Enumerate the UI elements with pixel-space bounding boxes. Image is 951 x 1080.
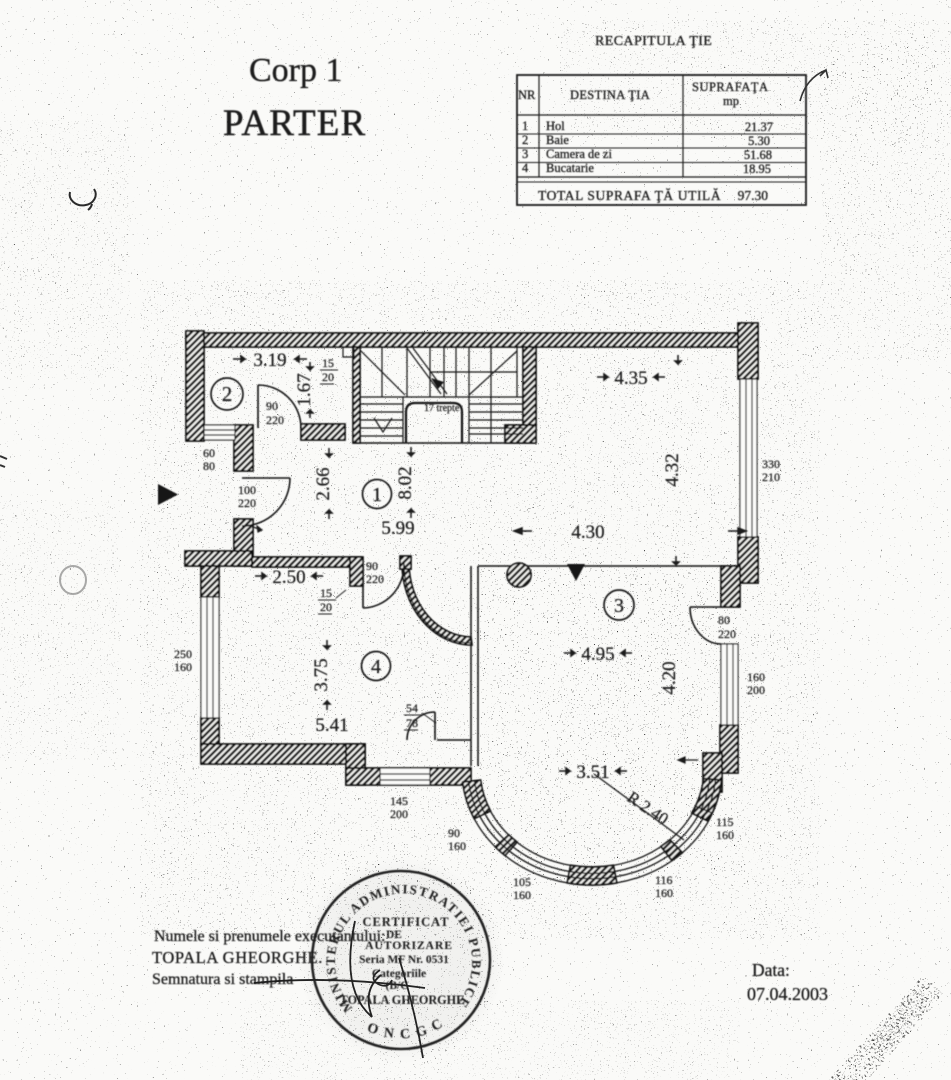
svg-text:2.50: 2.50 xyxy=(272,567,305,588)
svg-text:160: 160 xyxy=(513,888,531,902)
svg-text:4: 4 xyxy=(522,161,529,175)
svg-text:mp: mp xyxy=(723,94,739,108)
svg-text:NR: NR xyxy=(518,88,536,102)
svg-text:4.30: 4.30 xyxy=(571,522,604,543)
svg-text:SUPRAFAŢA: SUPRAFAŢA xyxy=(692,80,769,94)
svg-text:1: 1 xyxy=(372,484,382,506)
svg-text:21.37: 21.37 xyxy=(745,120,773,134)
svg-text:RECAPITULA ŢIE: RECAPITULA ŢIE xyxy=(595,34,712,49)
svg-text:90: 90 xyxy=(448,826,460,840)
svg-text:3.75: 3.75 xyxy=(311,658,332,691)
svg-text:3.19: 3.19 xyxy=(253,350,286,371)
svg-text:78: 78 xyxy=(406,716,418,730)
svg-text:Baie: Baie xyxy=(546,133,569,147)
svg-text:CERTIFICAT: CERTIFICAT xyxy=(362,915,449,929)
svg-text:Bucatarie: Bucatarie xyxy=(546,161,594,175)
svg-text:100: 100 xyxy=(238,483,256,497)
svg-text:210: 210 xyxy=(762,470,780,484)
svg-text:220: 220 xyxy=(238,496,256,510)
svg-text:160: 160 xyxy=(448,839,466,853)
svg-text:20: 20 xyxy=(322,370,334,384)
svg-text:160: 160 xyxy=(174,660,192,674)
svg-text:Semnatura si stampila: Semnatura si stampila xyxy=(152,971,293,988)
svg-text:116: 116 xyxy=(655,873,673,887)
svg-text:18.95: 18.95 xyxy=(743,162,771,176)
svg-text:160: 160 xyxy=(655,886,673,900)
svg-text:1: 1 xyxy=(522,119,528,133)
svg-text:54: 54 xyxy=(406,701,418,715)
svg-text:PARTER: PARTER xyxy=(223,103,366,144)
svg-text:160: 160 xyxy=(747,670,765,684)
svg-text:Data:: Data: xyxy=(752,960,790,980)
svg-text:145: 145 xyxy=(390,794,408,808)
svg-text:4.32: 4.32 xyxy=(662,453,683,486)
svg-text:60: 60 xyxy=(203,446,215,460)
svg-text:1.67: 1.67 xyxy=(294,373,315,406)
svg-text:4.20: 4.20 xyxy=(659,661,680,694)
svg-text:51.68: 51.68 xyxy=(744,148,772,162)
svg-text:250: 250 xyxy=(174,647,192,661)
svg-text:15: 15 xyxy=(320,586,332,600)
svg-text:Categoriile: Categoriile xyxy=(372,968,426,980)
svg-text:80: 80 xyxy=(203,459,215,473)
svg-text:3.51: 3.51 xyxy=(576,762,609,783)
svg-text:2: 2 xyxy=(522,133,528,147)
svg-text:4: 4 xyxy=(371,656,381,678)
svg-text:200: 200 xyxy=(390,807,408,821)
svg-text:Corp 1: Corp 1 xyxy=(249,52,343,89)
svg-text:2.66: 2.66 xyxy=(313,467,334,500)
svg-text:17 trepte: 17 trepte xyxy=(424,403,460,414)
svg-text:220: 220 xyxy=(266,413,284,427)
svg-text:160: 160 xyxy=(716,828,734,842)
svg-text:TOTAL SUPRAFA ŢĂ UTILĂ: TOTAL SUPRAFA ŢĂ UTILĂ xyxy=(538,188,721,203)
svg-text:105: 105 xyxy=(513,875,531,889)
svg-text:220: 220 xyxy=(366,572,384,586)
svg-text:5.99: 5.99 xyxy=(381,518,414,539)
svg-text:3: 3 xyxy=(522,147,528,161)
svg-text:330: 330 xyxy=(762,457,780,471)
svg-text:15: 15 xyxy=(322,356,334,370)
svg-text:220: 220 xyxy=(718,627,736,641)
svg-text:3: 3 xyxy=(614,595,624,617)
svg-text:80: 80 xyxy=(718,613,730,627)
svg-text:5.30: 5.30 xyxy=(748,134,770,148)
svg-text:DESTINA ŢIA: DESTINA ŢIA xyxy=(570,88,650,102)
svg-text:115: 115 xyxy=(716,815,734,829)
svg-text:2: 2 xyxy=(222,382,233,406)
svg-text:4.95: 4.95 xyxy=(581,644,614,665)
svg-text:97.30: 97.30 xyxy=(738,188,769,203)
svg-text:Numele si prenumele executantu: Numele si prenumele executantului: xyxy=(154,928,385,945)
svg-text:90: 90 xyxy=(266,399,278,413)
svg-text:07.04.2003: 07.04.2003 xyxy=(747,984,828,1004)
svg-text:8.02: 8.02 xyxy=(395,466,416,499)
svg-text:4.35: 4.35 xyxy=(614,368,647,389)
svg-text:20: 20 xyxy=(320,600,332,614)
svg-text:90: 90 xyxy=(366,559,378,573)
svg-text:200: 200 xyxy=(747,683,765,697)
svg-text:Hol: Hol xyxy=(546,119,565,133)
svg-text:5.41: 5.41 xyxy=(315,715,348,736)
svg-text:Seria MF Nr. 0531: Seria MF Nr. 0531 xyxy=(359,954,449,966)
svg-text:Camera de zi: Camera de zi xyxy=(546,147,612,161)
svg-text:TOPALA GHEORGHE.: TOPALA GHEORGHE. xyxy=(152,948,323,967)
